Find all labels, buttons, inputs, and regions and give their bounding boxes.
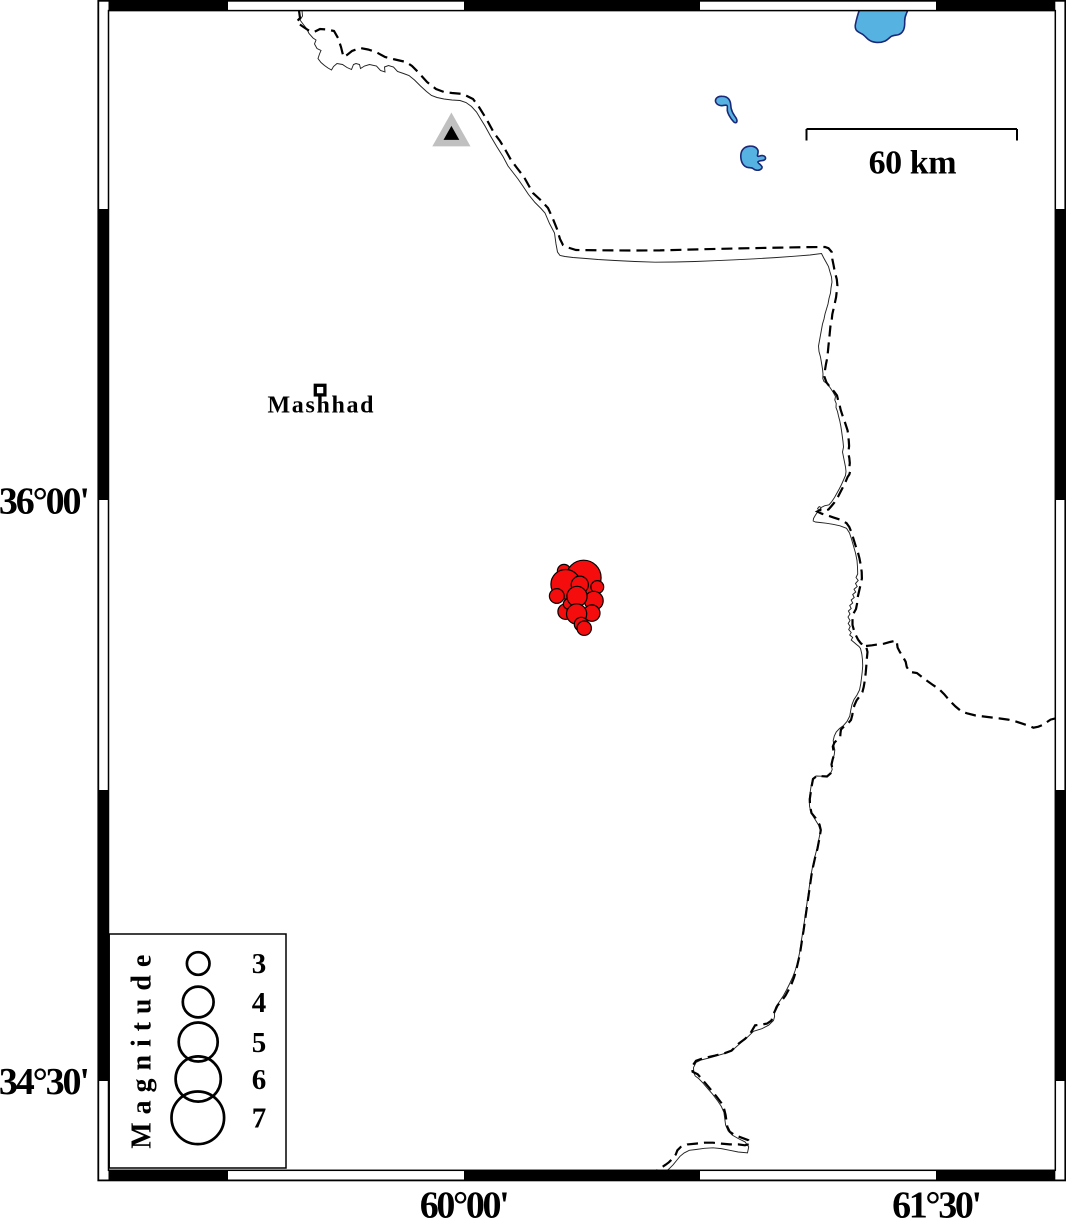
svg-text:60°00': 60°00'	[420, 1185, 510, 1219]
svg-text:Mashhad: Mashhad	[268, 393, 375, 419]
svg-text:3: 3	[252, 948, 267, 980]
svg-text:4: 4	[252, 987, 267, 1019]
svg-text:6: 6	[252, 1064, 267, 1096]
svg-text:7: 7	[252, 1103, 267, 1135]
svg-text:34°30': 34°30'	[0, 1061, 90, 1103]
svg-text:60 km: 60 km	[869, 145, 957, 182]
svg-text:61°30': 61°30'	[892, 1185, 982, 1219]
svg-text:5: 5	[252, 1027, 267, 1059]
svg-text:36°00': 36°00'	[0, 481, 90, 523]
